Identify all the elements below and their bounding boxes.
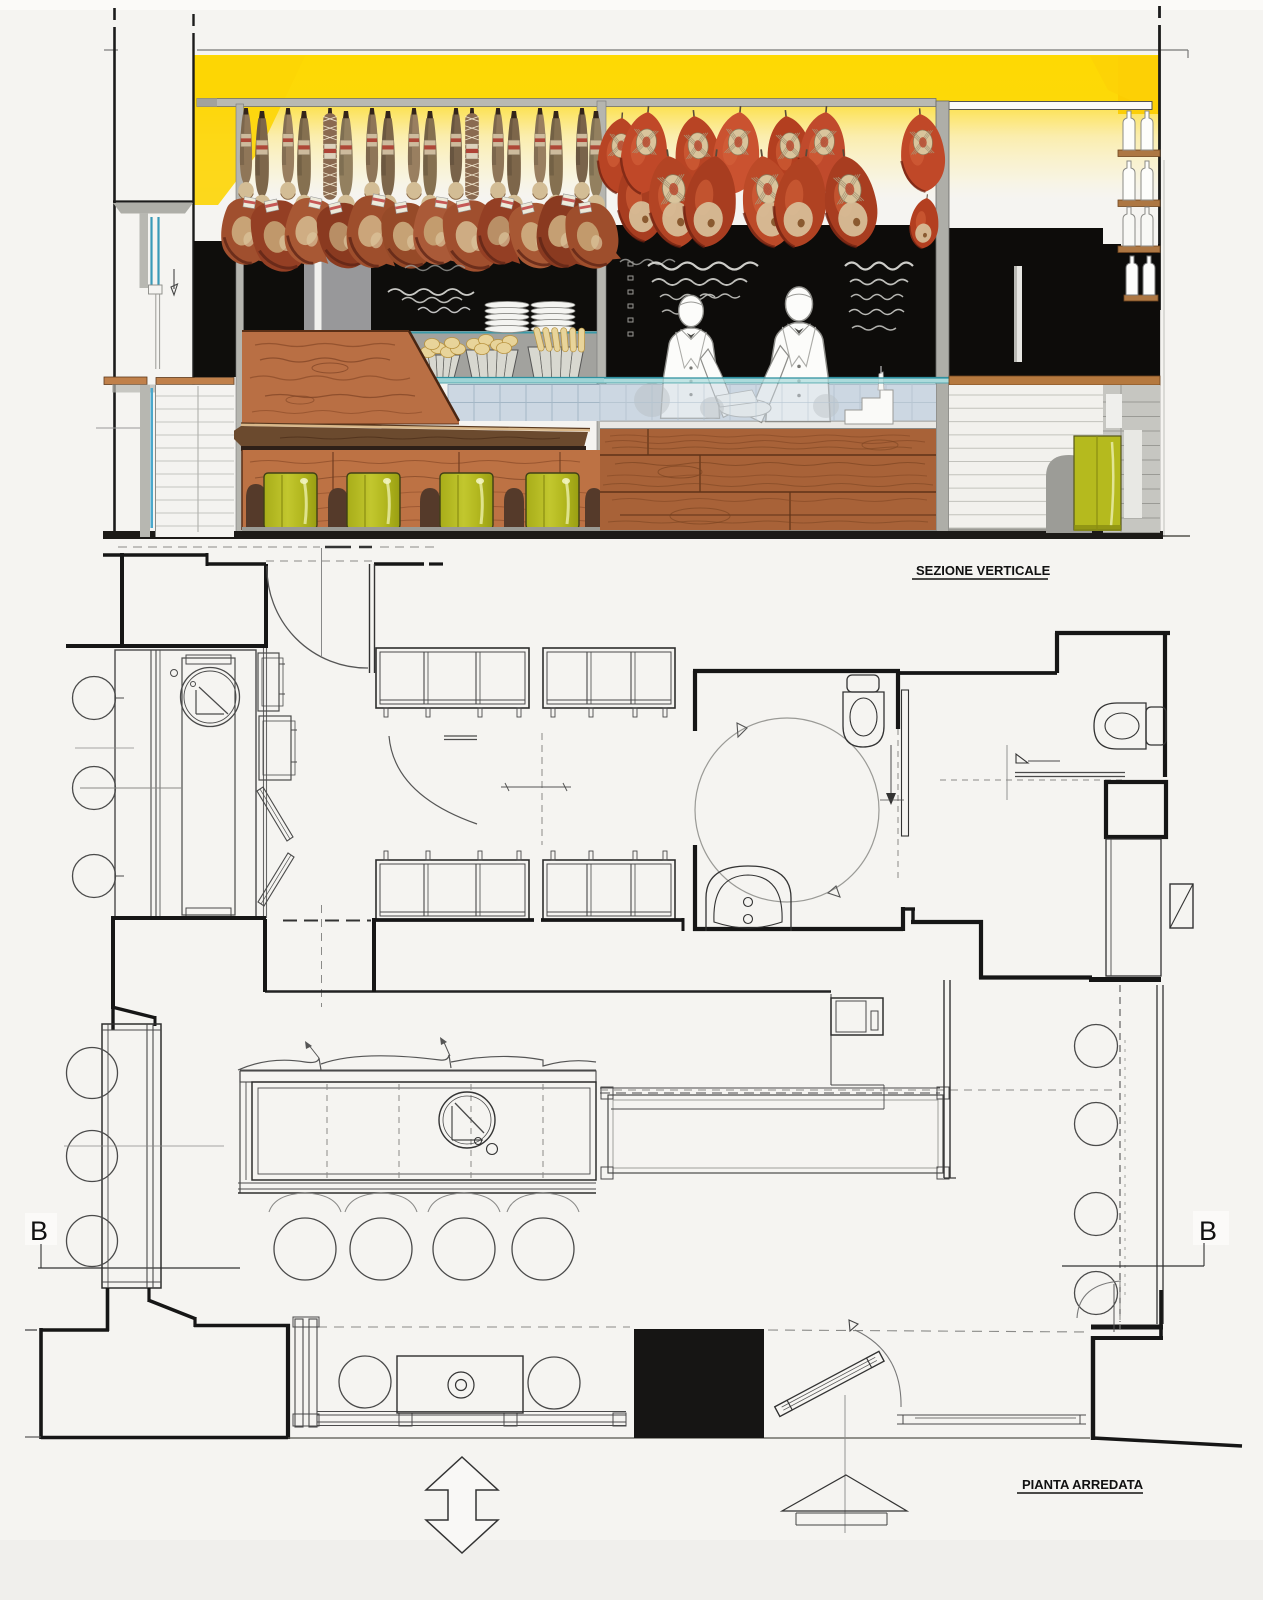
svg-text:PIANTA ARREDATA: PIANTA ARREDATA <box>1022 1477 1144 1492</box>
svg-text:SEZIONE VERTICALE: SEZIONE VERTICALE <box>916 563 1051 578</box>
svg-text:B: B <box>1199 1216 1217 1246</box>
svg-text:B: B <box>30 1216 48 1246</box>
